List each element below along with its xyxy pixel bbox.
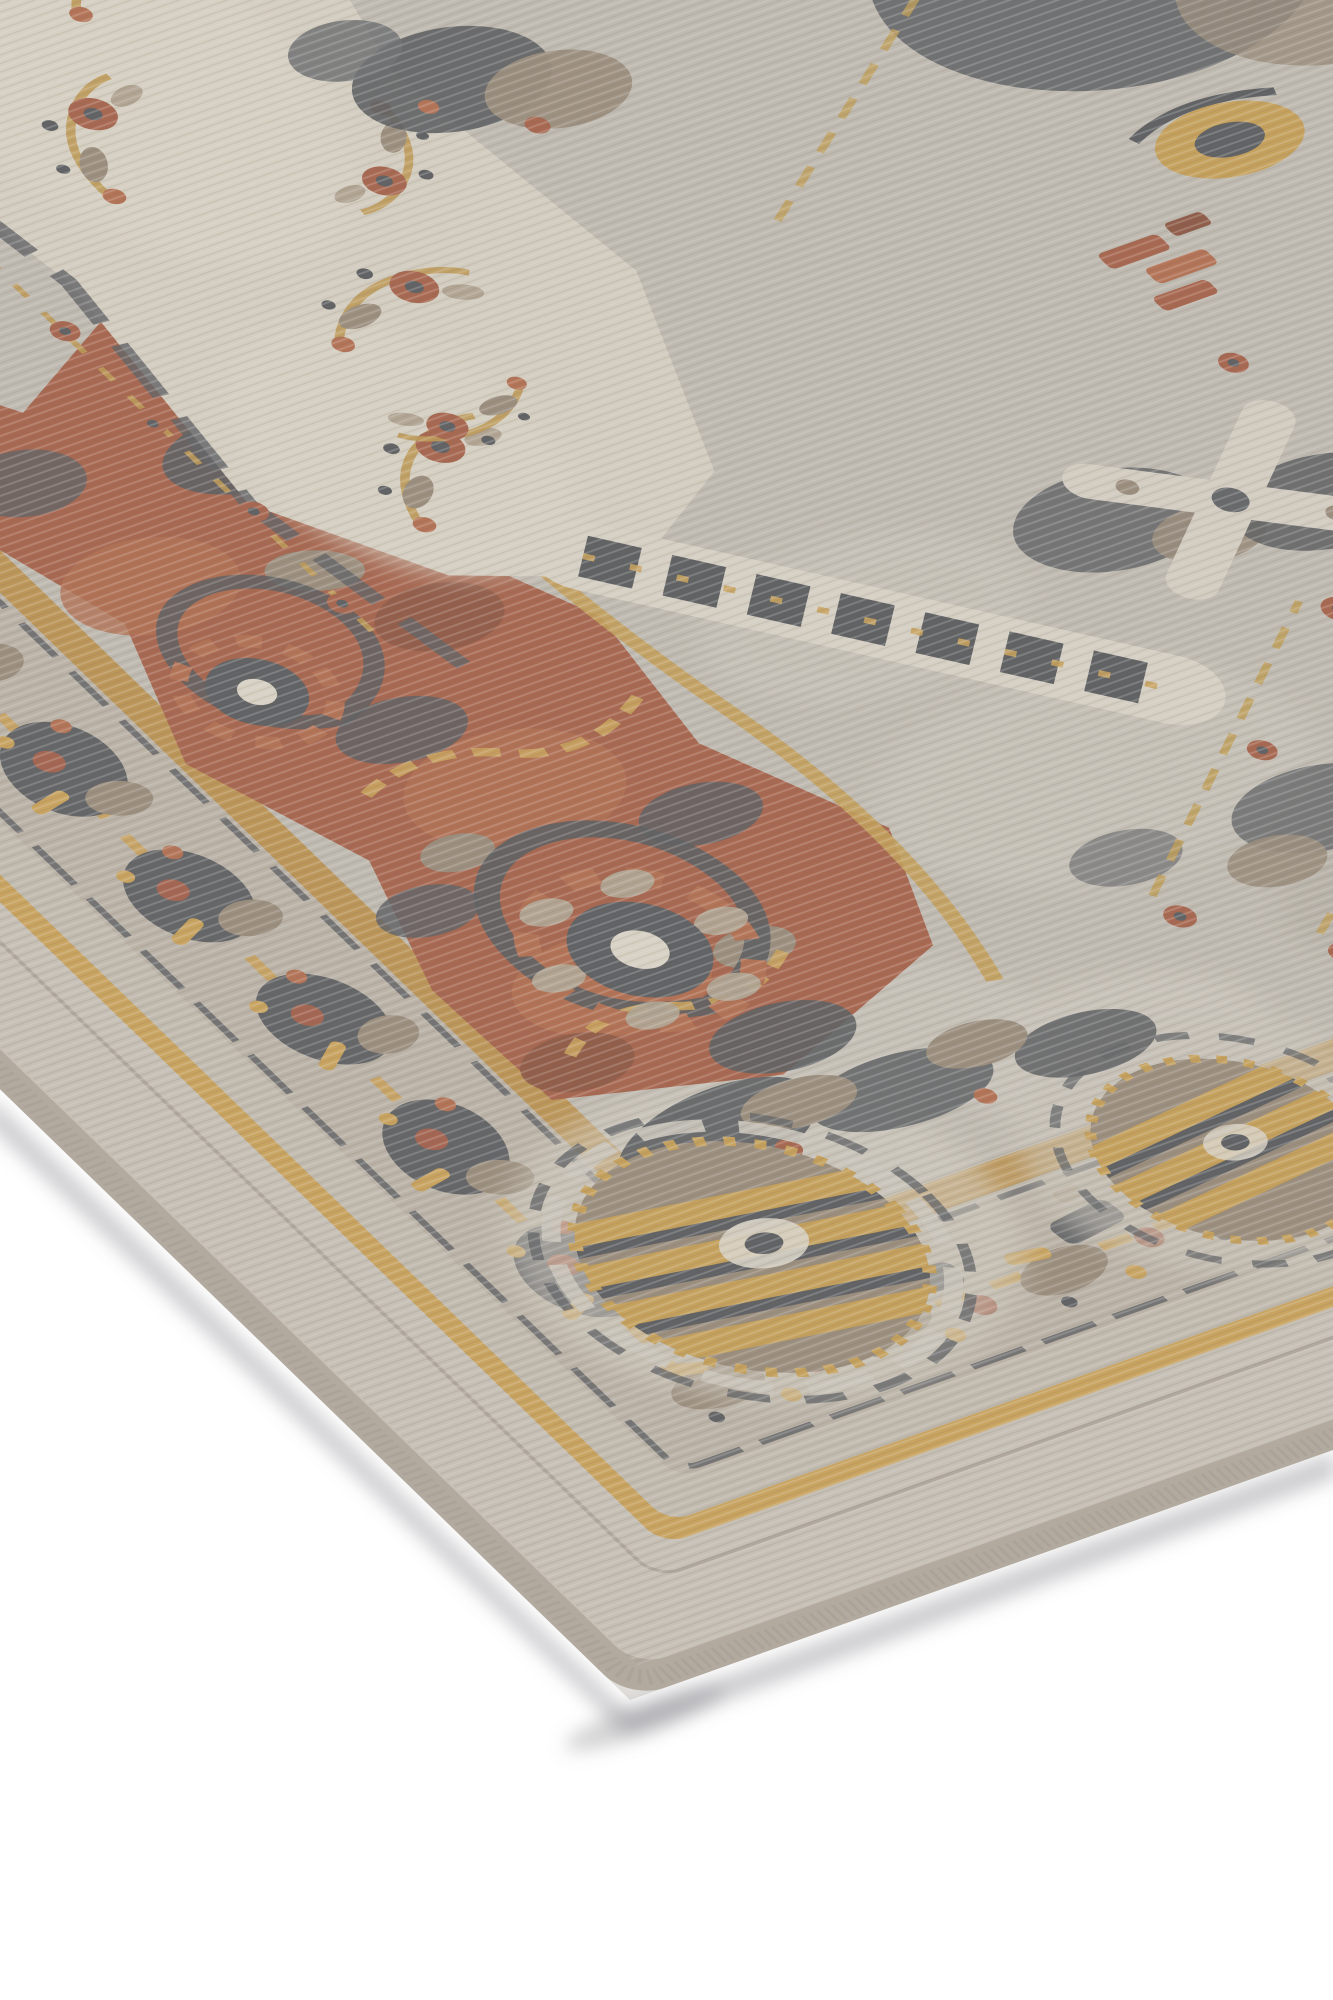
rug-photo-canvas [0,0,1333,2000]
rug-product-photo [0,0,1333,2000]
